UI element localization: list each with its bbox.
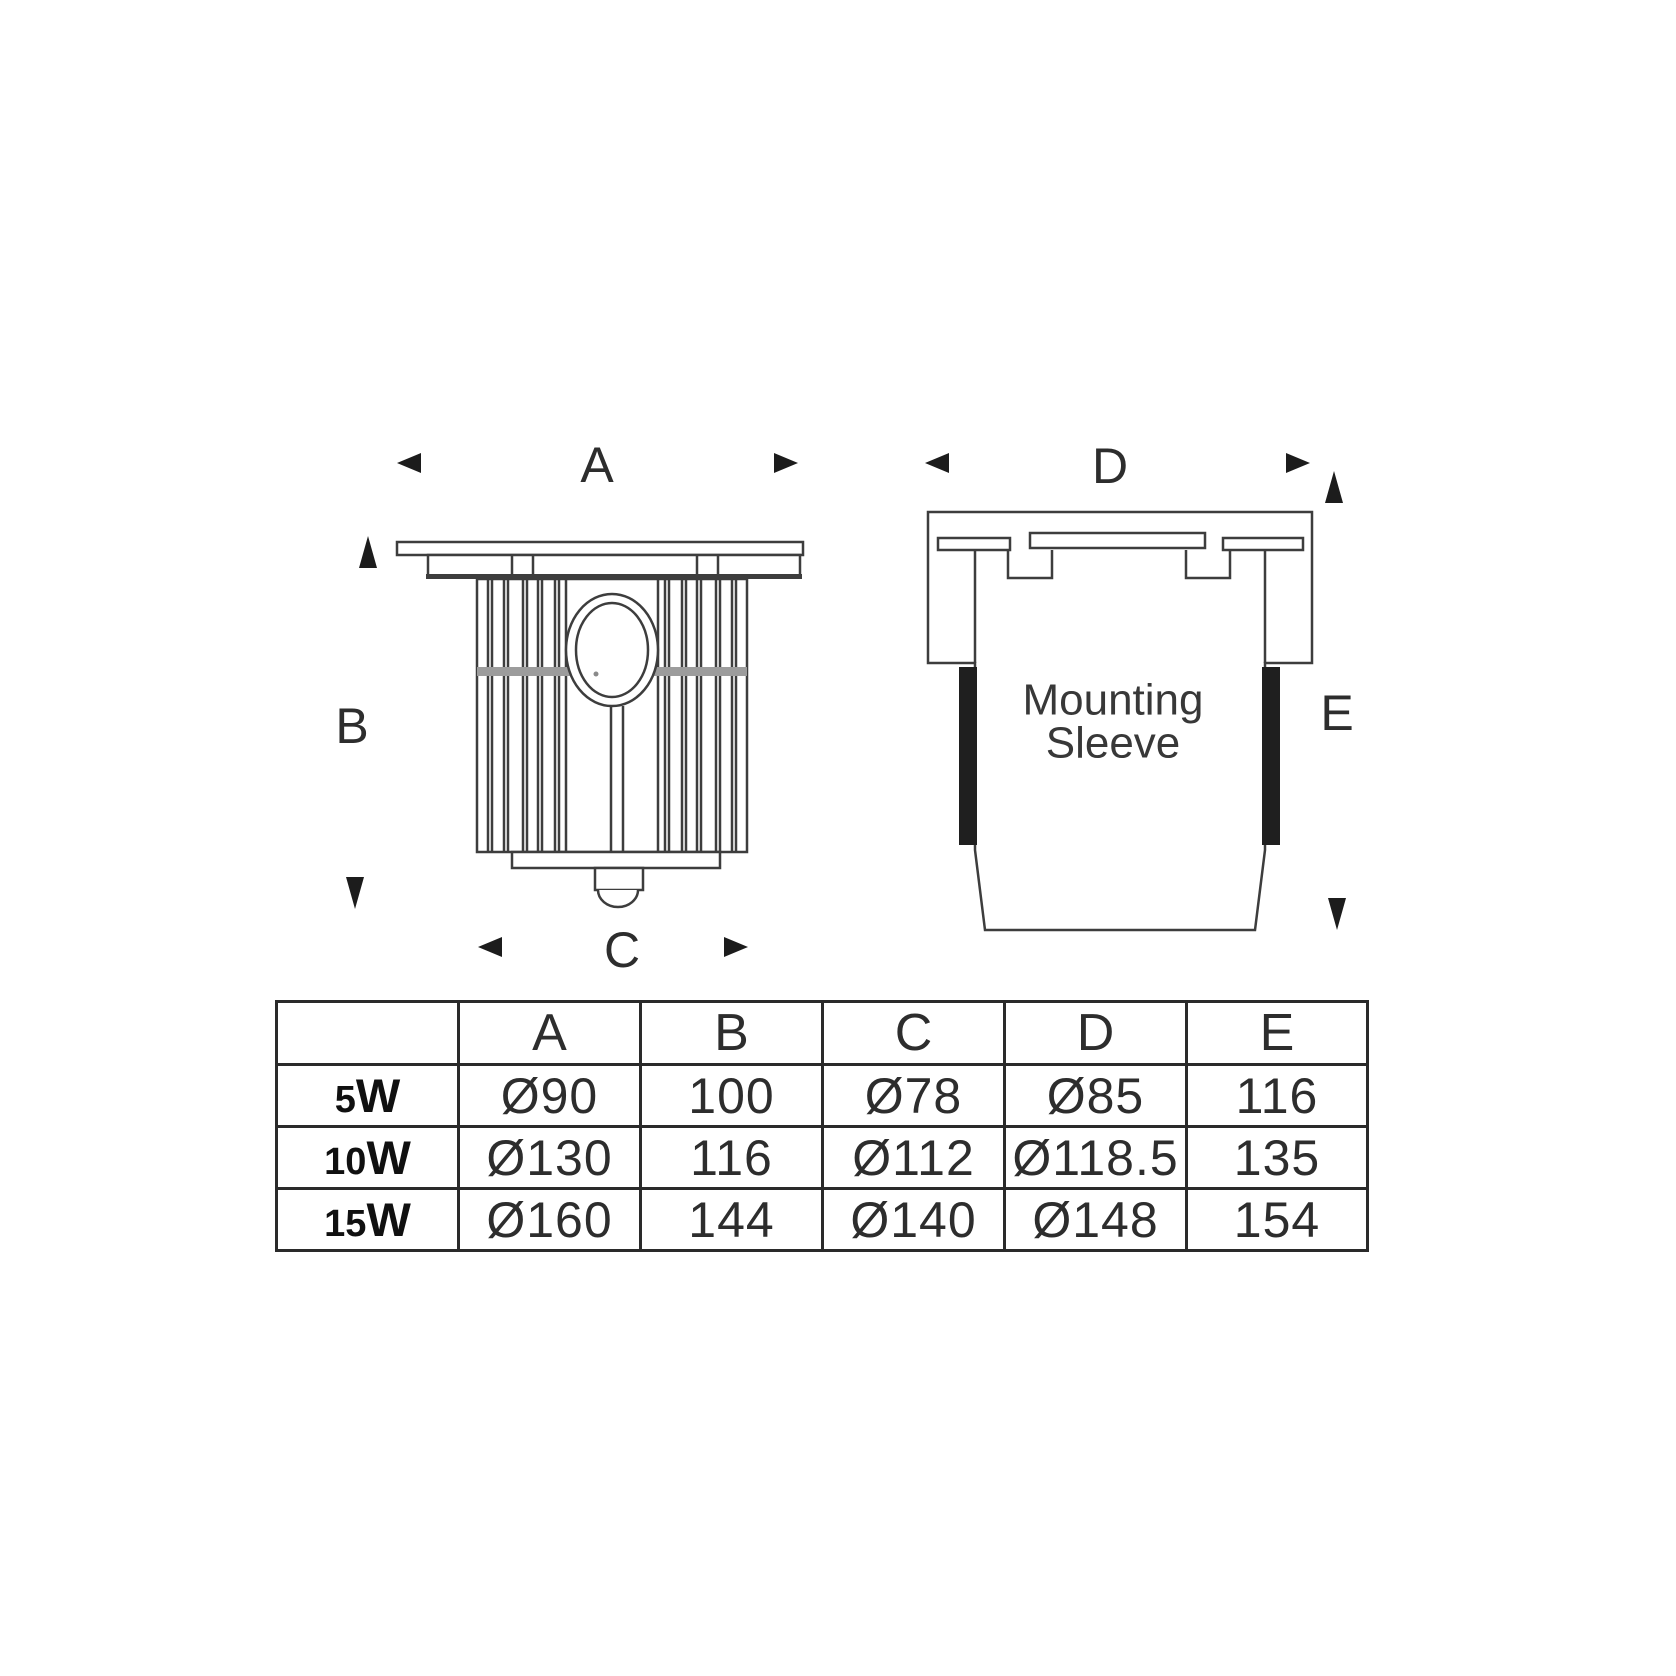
gasket-bar-right	[1262, 667, 1280, 845]
cell-5w-e: 116	[1187, 1065, 1368, 1127]
power-value: 5	[335, 1079, 356, 1121]
dim-a-left-arrow-icon	[397, 453, 421, 473]
technical-drawing: A B C	[0, 0, 1676, 980]
dim-b-up-arrow-icon	[359, 536, 377, 568]
dim-e-down-arrow-icon	[1328, 898, 1346, 930]
dim-b-label: B	[335, 698, 368, 754]
cell-15w-b: 144	[641, 1189, 823, 1251]
bezel-base-line	[426, 574, 802, 579]
power-unit: W	[366, 1131, 410, 1184]
top-plate-right	[1223, 538, 1303, 550]
row-label-15w: 15W	[277, 1189, 459, 1251]
dim-d-right-arrow-icon	[1286, 453, 1310, 473]
dim-b-down-arrow-icon	[346, 877, 364, 909]
top-plate-center	[1030, 533, 1205, 548]
dim-e-up-arrow-icon	[1325, 471, 1343, 503]
gland-stub	[595, 868, 643, 890]
bezel-ring	[428, 555, 800, 576]
dim-d-left-arrow-icon	[925, 453, 949, 473]
dim-c-label: C	[604, 922, 640, 978]
dimension-sheet: A B C	[0, 0, 1676, 1676]
dim-a-label: A	[580, 437, 614, 493]
cell-5w-b: 100	[641, 1065, 823, 1127]
dimension-c: C	[478, 922, 748, 978]
dimension-table: A B C D E 5W Ø90 100 Ø78 Ø85 116 10W Ø13…	[275, 1000, 1369, 1252]
top-plate-left	[938, 538, 1010, 550]
table-row-5w: 5W Ø90 100 Ø78 Ø85 116	[277, 1065, 1368, 1127]
luminaire-front-view	[397, 542, 803, 907]
cell-10w-a: Ø130	[459, 1127, 641, 1189]
mounting-sleeve-caption: Mounting Sleeve	[1022, 676, 1203, 768]
flange-plate	[397, 542, 803, 555]
power-unit: W	[366, 1193, 410, 1246]
cell-10w-b: 116	[641, 1127, 823, 1189]
column-header-c: C	[823, 1002, 1005, 1065]
dim-a-right-arrow-icon	[774, 453, 798, 473]
cell-5w-a: Ø90	[459, 1065, 641, 1127]
dim-c-left-arrow-icon	[478, 937, 502, 957]
table-corner-cell	[277, 1002, 459, 1065]
table-row-10w: 10W Ø130 116 Ø112 Ø118.5 135	[277, 1127, 1368, 1189]
dimension-a: A	[397, 437, 798, 493]
gland-dome	[598, 890, 638, 907]
sleeve-caption-line1: Mounting	[1022, 676, 1203, 725]
dimension-d: D	[925, 438, 1310, 494]
sleeve-caption-line2: Sleeve	[1046, 719, 1181, 768]
bottom-cap	[512, 852, 720, 868]
row-label-10w: 10W	[277, 1127, 459, 1189]
dimension-b: B	[335, 536, 377, 909]
power-unit: W	[356, 1069, 400, 1122]
table-header-row: A B C D E	[277, 1002, 1368, 1065]
column-header-d: D	[1005, 1002, 1187, 1065]
cell-10w-e: 135	[1187, 1127, 1368, 1189]
lens	[576, 603, 648, 697]
table-row-15w: 15W Ø160 144 Ø140 Ø148 154	[277, 1189, 1368, 1251]
power-value: 10	[324, 1141, 366, 1183]
cell-15w-c: Ø140	[823, 1189, 1005, 1251]
dim-e-label: E	[1320, 685, 1353, 741]
gasket-bar-left	[959, 667, 977, 845]
cell-15w-a: Ø160	[459, 1189, 641, 1251]
cell-15w-e: 154	[1187, 1189, 1368, 1251]
cell-15w-d: Ø148	[1005, 1189, 1187, 1251]
column-header-e: E	[1187, 1002, 1368, 1065]
cell-10w-d: Ø118.5	[1005, 1127, 1187, 1189]
cell-5w-c: Ø78	[823, 1065, 1005, 1127]
dimension-e: E	[1320, 471, 1353, 930]
dim-d-label: D	[1092, 438, 1128, 494]
dim-c-right-arrow-icon	[724, 937, 748, 957]
column-header-b: B	[641, 1002, 823, 1065]
row-label-5w: 5W	[277, 1065, 459, 1127]
cell-5w-d: Ø85	[1005, 1065, 1187, 1127]
column-header-a: A	[459, 1002, 641, 1065]
lens-dot	[594, 672, 599, 677]
power-value: 15	[324, 1203, 366, 1245]
cell-10w-c: Ø112	[823, 1127, 1005, 1189]
